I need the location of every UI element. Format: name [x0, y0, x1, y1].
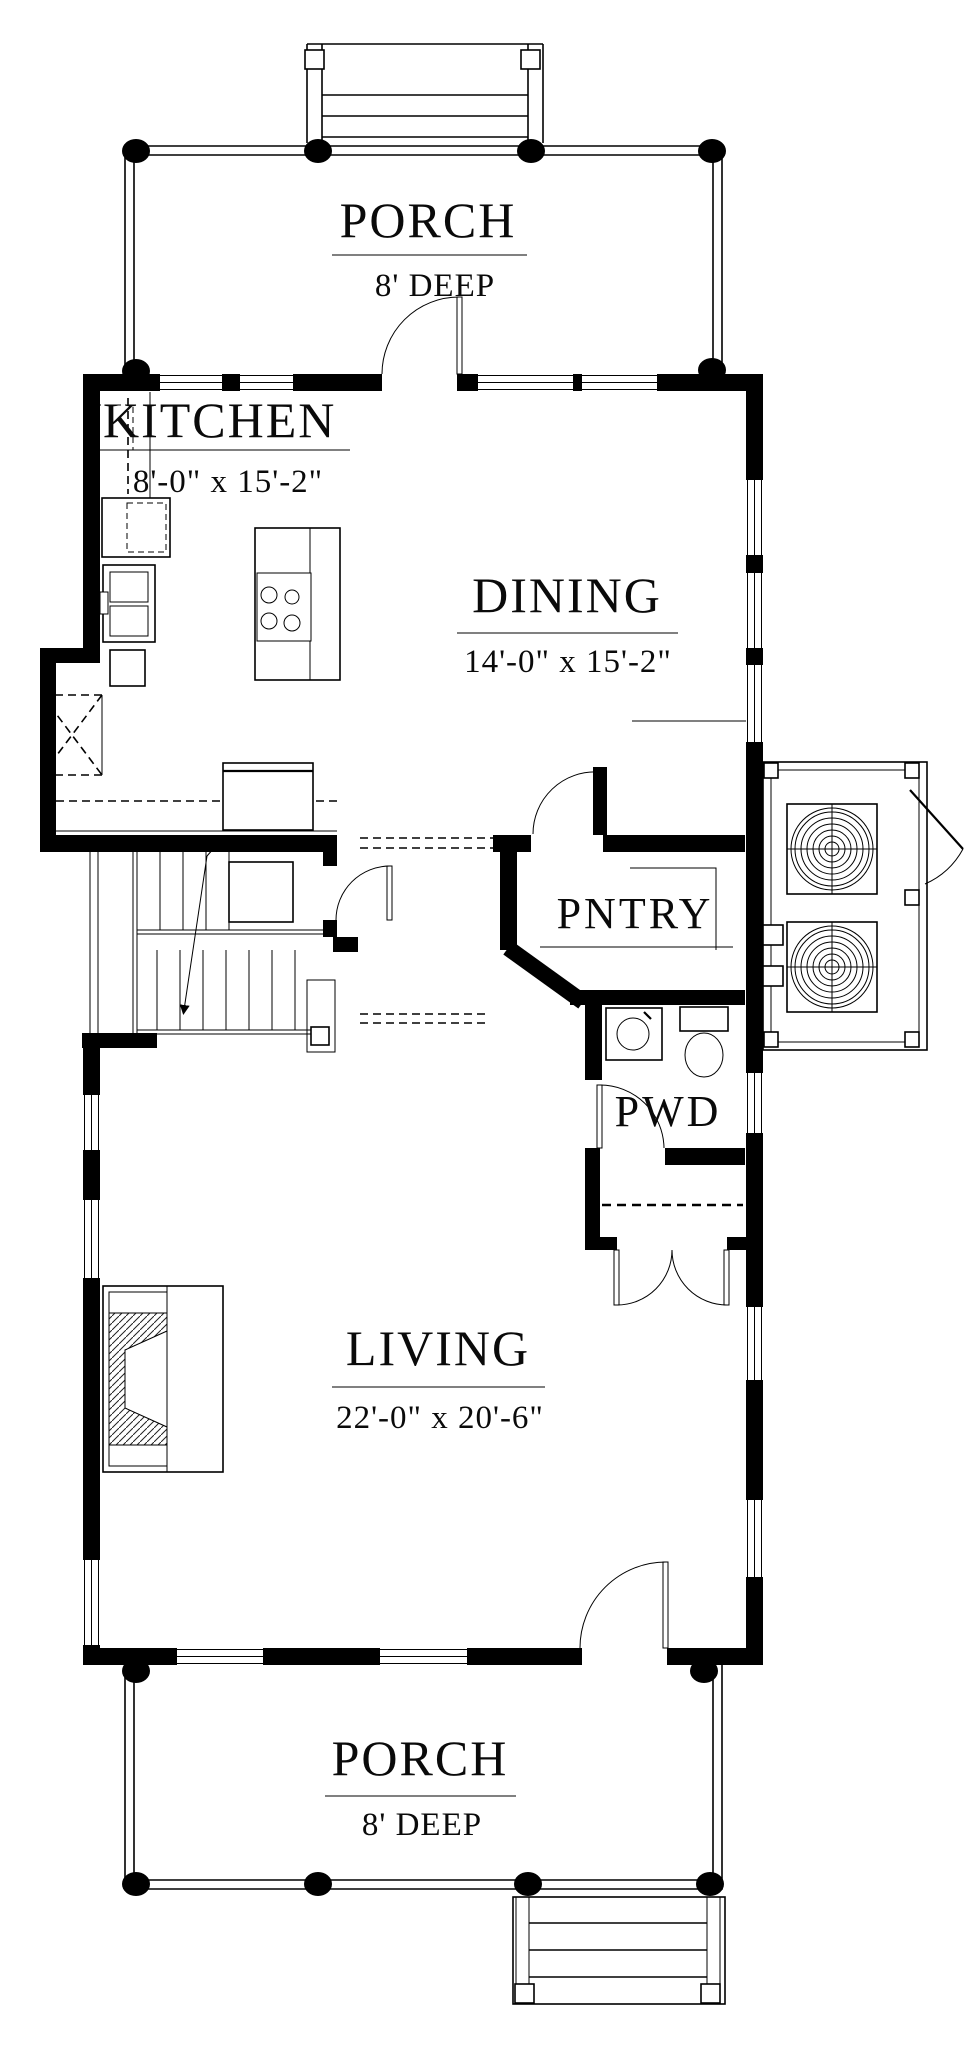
deck-gate-leaf: [910, 790, 963, 849]
window: [582, 376, 657, 390]
deck-post: [905, 890, 919, 905]
wall-segment: [83, 1278, 100, 1560]
wall-segment: [40, 835, 337, 852]
room-size-living: 22'-0" x 20'-6": [336, 1400, 544, 1436]
room-size-dining: 14'-0" x 15'-2": [464, 644, 672, 680]
wall-segment: [83, 1150, 100, 1200]
wall-segment: [83, 1048, 100, 1095]
wall-segment: [82, 1033, 157, 1048]
stair-direction-arrow: [184, 856, 207, 1010]
room-label-pantry: PNTRY: [557, 889, 714, 938]
wall-segment: [746, 1577, 763, 1665]
stair-landing: [229, 862, 293, 922]
deck-gate-swing-arc: [925, 849, 963, 884]
window: [478, 376, 573, 390]
sink-basin: [110, 606, 148, 636]
front-door-swing-arc: [382, 297, 459, 374]
deck-post: [905, 1032, 919, 1047]
window: [748, 1073, 762, 1133]
window: [380, 1650, 467, 1664]
deck-post: [905, 763, 919, 778]
wall-stub: [333, 937, 358, 952]
wall-segment: [493, 835, 531, 852]
wall-segment: [457, 374, 478, 391]
newel-post: [515, 1984, 534, 2003]
wall-segment: [467, 1648, 582, 1665]
deck-post: [764, 1032, 778, 1047]
toilet-tank: [680, 1007, 728, 1031]
dishwasher: [110, 650, 145, 686]
front-door-leaf: [457, 297, 462, 374]
door-swing-arc: [580, 1562, 666, 1648]
newel-post: [521, 50, 540, 69]
pantry-powder-wall: [570, 990, 745, 1005]
hvac-condenser: [787, 922, 877, 1012]
laundry-sink: [606, 1008, 662, 1060]
room-label-porch-bottom: PORCH: [332, 1730, 509, 1786]
door-jamb: [585, 1237, 617, 1250]
fireplace: [103, 1286, 223, 1472]
pantry-west-wall: [500, 852, 517, 950]
top-steps: [305, 44, 543, 143]
porch-rail-inner: [134, 155, 713, 374]
kitchen-island: [255, 528, 340, 680]
wall-segment: [746, 1133, 763, 1307]
window: [748, 480, 762, 555]
refrigerator: [102, 498, 170, 557]
porch-column: [514, 1872, 542, 1896]
toilet-bowl: [685, 1033, 723, 1077]
disconnect-box: [763, 966, 783, 986]
living-room-door: [580, 1562, 668, 1648]
window: [240, 376, 293, 390]
newel-post: [305, 50, 324, 69]
window: [85, 1200, 99, 1278]
window: [748, 1500, 762, 1577]
room-size-kitchen: 8'-0" x 15'-2": [133, 464, 323, 500]
sink-faucet: [100, 592, 108, 614]
door-jamb: [323, 852, 337, 866]
fireplace-leg: [109, 1292, 167, 1313]
cooktop: [257, 573, 311, 641]
wall-segment: [585, 1148, 600, 1165]
window: [748, 665, 762, 742]
wall-segment: [746, 374, 763, 480]
room-size-porch-top: 8' DEEP: [375, 268, 495, 304]
room-label-powder: PWD: [615, 1087, 722, 1136]
window: [177, 1650, 263, 1664]
window: [748, 573, 762, 648]
porch-column: [517, 139, 545, 163]
room-label-porch-top: PORCH: [340, 192, 517, 248]
french-door-leaf: [724, 1250, 729, 1305]
porch-column: [696, 1872, 724, 1896]
wall-segment: [603, 835, 745, 852]
staircase: [133, 848, 335, 1052]
door-jamb: [323, 920, 337, 937]
rear-entry-doors: [614, 1250, 729, 1305]
french-door-swing-arc: [617, 1250, 672, 1305]
wall-segment: [293, 374, 382, 391]
newel-post: [311, 1027, 329, 1045]
window: [85, 1095, 99, 1150]
wall-segment: [746, 648, 763, 665]
window: [748, 1307, 762, 1380]
pantry-door-swing-arc: [533, 772, 598, 834]
room-label-kitchen: KITCHEN: [103, 392, 336, 448]
wall-segment: [222, 374, 240, 391]
powder-west-wall: [585, 1005, 602, 1080]
floor-plan-page: PORCH 8' DEEP KITCHEN 8'-0" x 15'-2" DIN…: [0, 0, 965, 2048]
hvac-deck: [763, 762, 963, 1050]
wall-segment: [746, 742, 763, 1073]
porch-column: [122, 1659, 150, 1683]
window: [85, 1560, 99, 1645]
bottom-steps: [513, 1897, 725, 2004]
wall-segment: [746, 555, 763, 573]
porch-rail-outer: [125, 146, 722, 374]
hall-door-swing-arc: [336, 866, 390, 920]
porch-column: [304, 1872, 332, 1896]
newel-post: [701, 1984, 720, 2003]
pantry-door-jamb-wall: [593, 767, 607, 835]
fireplace-leg: [109, 1445, 167, 1466]
door-leaf: [663, 1562, 668, 1648]
french-door-leaf: [614, 1250, 619, 1305]
porch-column: [122, 1872, 150, 1896]
powder-door-leaf: [597, 1085, 602, 1148]
door-jamb: [727, 1237, 746, 1250]
hvac-condenser: [787, 804, 877, 894]
room-size-porch-bottom: 8' DEEP: [362, 1807, 482, 1843]
wall-segment: [573, 374, 582, 391]
wall-segment: [263, 1648, 380, 1665]
floor-plan-drawing: PORCH 8' DEEP KITCHEN 8'-0" x 15'-2" DIN…: [0, 0, 965, 2048]
room-label-living: LIVING: [346, 1320, 530, 1376]
sink-basin: [110, 572, 148, 602]
porch-column: [690, 1659, 718, 1683]
disconnect-box: [763, 925, 783, 945]
hall-door-leaf: [387, 866, 392, 920]
wall-segment: [83, 374, 100, 648]
room-label-dining: DINING: [472, 567, 662, 623]
wall-segment: [665, 1148, 745, 1165]
deck-post: [764, 763, 778, 778]
porch-column: [698, 139, 726, 163]
porch-column: [304, 139, 332, 163]
range-cabinet: [223, 763, 313, 830]
french-door-swing-arc: [672, 1250, 727, 1305]
wall-segment: [746, 1380, 763, 1500]
window: [160, 376, 222, 390]
porch-column: [122, 139, 150, 163]
